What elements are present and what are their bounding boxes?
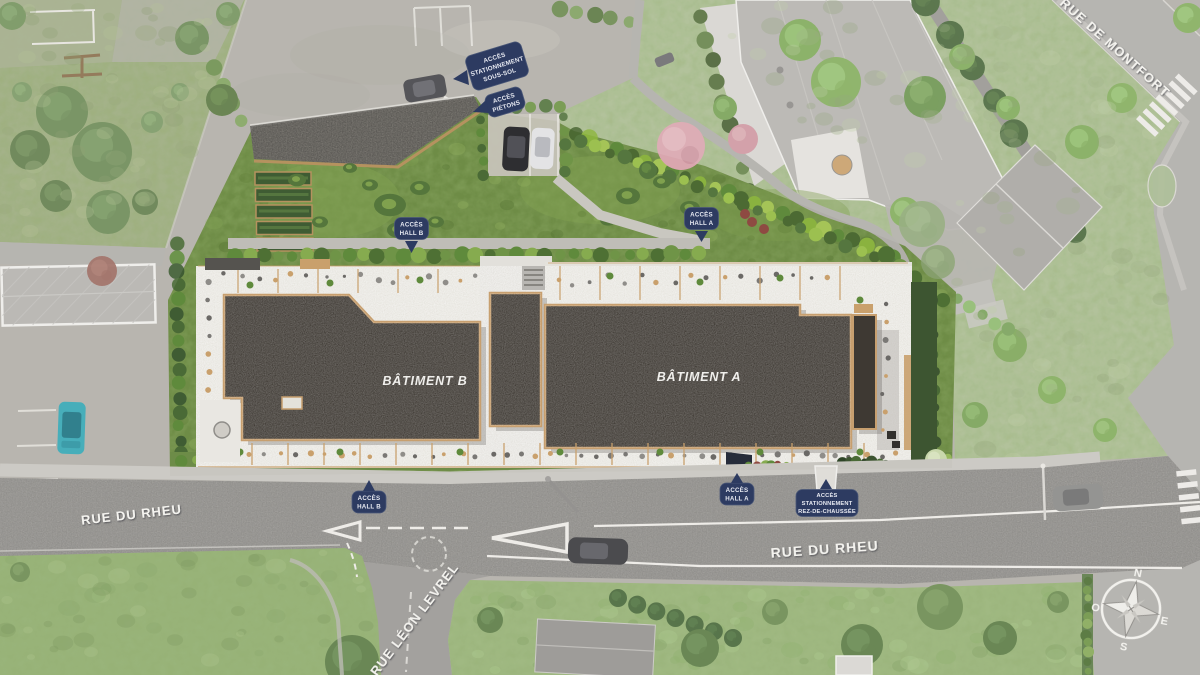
svg-text:HALL B: HALL B bbox=[357, 503, 381, 510]
svg-text:BÂTIMENT A: BÂTIMENT A bbox=[657, 369, 742, 384]
svg-text:ACCÈS: ACCÈS bbox=[690, 210, 713, 218]
svg-text:ACCÈS: ACCÈS bbox=[726, 486, 749, 494]
svg-text:ACCÈS: ACCÈS bbox=[817, 491, 838, 499]
svg-text:ACCÈS: ACCÈS bbox=[400, 220, 423, 228]
svg-text:HALL A: HALL A bbox=[690, 220, 714, 227]
svg-text:REZ-DE-CHAUSSÉE: REZ-DE-CHAUSSÉE bbox=[798, 507, 856, 515]
svg-text:ACCÈS: ACCÈS bbox=[358, 494, 381, 502]
svg-text:STATIONNEMENT: STATIONNEMENT bbox=[802, 501, 853, 507]
svg-text:HALL B: HALL B bbox=[400, 230, 424, 237]
svg-text:BÂTIMENT B: BÂTIMENT B bbox=[382, 373, 467, 388]
svg-text:HALL A: HALL A bbox=[725, 495, 749, 502]
